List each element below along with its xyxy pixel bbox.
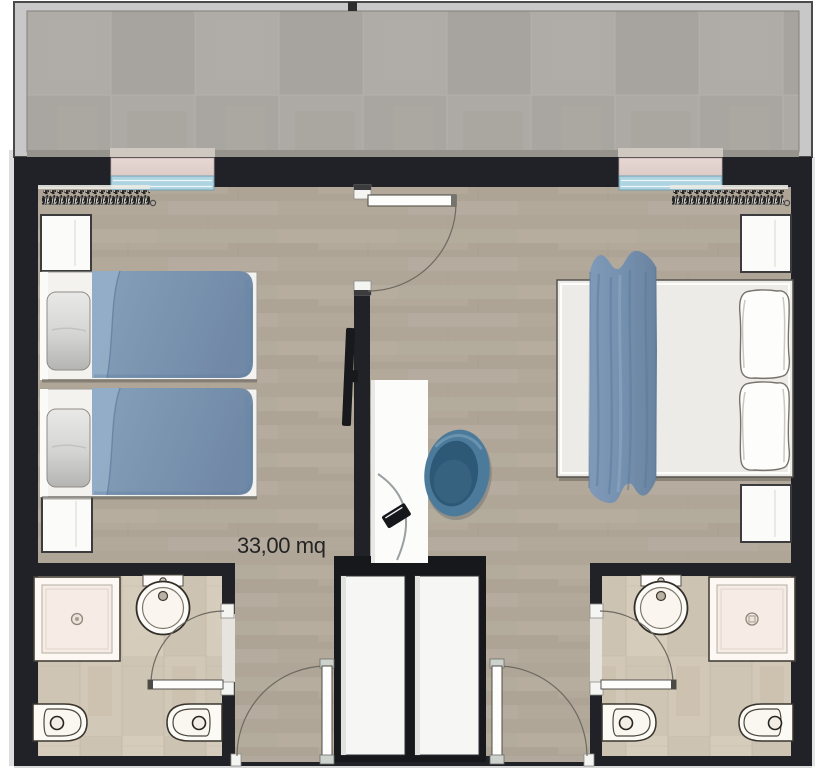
svg-text:33,00 mq: 33,00 mq bbox=[237, 533, 326, 558]
